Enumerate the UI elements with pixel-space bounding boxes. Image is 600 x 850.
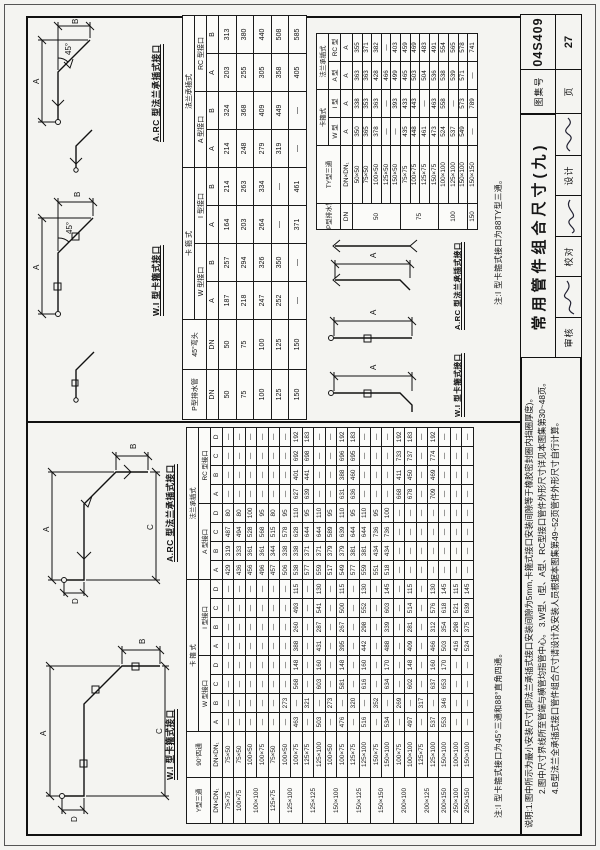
- data-cell: 125×75: [302, 732, 313, 778]
- data-cell: —: [405, 522, 416, 541]
- data-cell: 100×100: [405, 732, 416, 778]
- data-cell: 524: [462, 637, 473, 656]
- data-cell: 554: [439, 33, 449, 61]
- data-cell: —: [336, 694, 347, 713]
- data-cell: 500: [336, 599, 347, 618]
- data-cell: —: [348, 713, 359, 732]
- data-cell: 125×100: [279, 778, 302, 824]
- data-cell: 491: [429, 33, 439, 61]
- header-cell: Y型三通: [187, 778, 211, 824]
- svg-text:B: B: [71, 19, 80, 24]
- data-cell: 150×75: [371, 732, 382, 778]
- data-cell: 381: [359, 541, 370, 560]
- data-cell: 488: [382, 637, 393, 656]
- data-cell: 487: [223, 522, 234, 541]
- data-cell: 639: [302, 484, 313, 503]
- data-cell: —: [279, 713, 290, 732]
- data-cell: 443: [410, 89, 420, 117]
- data-cell: 125×100: [314, 732, 325, 778]
- elbow-45-table: P型排水管45°弯头卡 箍 式法兰承插式W 型接口I 型接口A 型接口RC 型接…: [182, 16, 307, 420]
- data-cell: 506: [279, 560, 290, 579]
- data-cell: 192: [393, 427, 404, 446]
- data-cell: 338: [291, 541, 302, 560]
- data-cell: 371: [289, 206, 307, 244]
- data-cell: 395: [336, 637, 347, 656]
- data-cell: 433: [400, 89, 410, 117]
- data-cell: —: [428, 694, 439, 713]
- data-cell: —: [416, 713, 427, 732]
- data-cell: —: [450, 656, 461, 675]
- svg-text:D: D: [70, 816, 79, 822]
- svg-text:A: A: [369, 364, 378, 370]
- data-cell: 371: [362, 33, 372, 61]
- data-cell: —: [393, 599, 404, 618]
- data-cell: —: [462, 446, 473, 465]
- table-row: 100×75————————49636156895————: [257, 427, 268, 823]
- data-cell: 434: [371, 541, 382, 560]
- data-cell: —: [325, 446, 336, 465]
- y-tee-cross-table: Y型三通90°四通卡 箍 式法兰承插式W 型接口I 型接口A 型接口RC 型接口…: [186, 428, 474, 824]
- data-cell: 403: [391, 33, 401, 61]
- atlas-no-label: 图集号: [520, 69, 556, 114]
- data-cell: 692: [291, 446, 302, 465]
- data-cell: 100×75: [257, 732, 268, 778]
- table-row: 150×100534—63417048833960314551843473610…: [382, 427, 393, 823]
- data-cell: 371: [302, 541, 313, 560]
- data-cell: —: [289, 129, 307, 167]
- data-cell: 503: [439, 637, 450, 656]
- data-cell: —: [325, 637, 336, 656]
- data-cell: —: [405, 560, 416, 579]
- data-cell: —: [314, 484, 325, 503]
- data-cell: 459: [400, 33, 410, 61]
- data-cell: 553: [439, 713, 450, 732]
- data-cell: —: [439, 446, 450, 465]
- data-cell: 100×75: [291, 732, 302, 778]
- remarks-block: 说明:1.图中所示为最小安装尺寸(即法兰承插式接口安装间隙为5mm,卡箍式接口安…: [523, 360, 562, 828]
- data-cell: 95: [257, 503, 268, 522]
- data-cell: 200×125: [416, 778, 439, 824]
- header-cell: C: [211, 599, 223, 618]
- data-cell: 644: [302, 522, 313, 541]
- header-cell: A: [341, 61, 353, 89]
- data-cell: 483: [420, 33, 430, 61]
- data-cell: —: [450, 503, 461, 522]
- data-cell: 517: [325, 560, 336, 579]
- data-cell: 559: [359, 560, 370, 579]
- data-cell: —: [439, 522, 450, 541]
- table-row: 75×50365353363371: [362, 33, 372, 229]
- data-cell: 50: [353, 204, 401, 230]
- header-cell: A: [207, 53, 219, 91]
- header-cell: C: [211, 446, 223, 465]
- header-cell: W 型: [329, 118, 341, 146]
- data-cell: —: [468, 61, 478, 89]
- data-cell: —: [245, 675, 256, 694]
- header-cell: A 型接口: [195, 91, 207, 167]
- elbow-diagram-wi: 45° A B: [30, 188, 142, 328]
- data-cell: —: [314, 446, 325, 465]
- data-cell: 639: [336, 522, 347, 541]
- data-cell: 668: [393, 484, 404, 503]
- data-cell: —: [234, 427, 245, 446]
- data-cell: —: [245, 484, 256, 503]
- data-cell: —: [257, 446, 268, 465]
- data-cell: —: [450, 427, 461, 446]
- data-cell: 344: [268, 541, 279, 560]
- data-cell: —: [450, 675, 461, 694]
- data-cell: —: [279, 465, 290, 484]
- remark-line-3: 4.B型法兰全承插式接口管件组合尺寸请设计及安装人员根据本图集第49~52页管件…: [549, 360, 562, 828]
- table-row: 125×100100×50—273——————50633857895————: [279, 427, 290, 823]
- data-cell: 442: [359, 637, 370, 656]
- data-cell: —: [428, 503, 439, 522]
- table-row: DNDNABABABAB: [207, 15, 219, 419]
- data-cell: —: [416, 637, 427, 656]
- data-cell: 319: [223, 541, 234, 560]
- data-cell: 371: [314, 541, 325, 560]
- data-cell: 160: [314, 656, 325, 675]
- data-cell: 298: [450, 618, 461, 637]
- svg-text:45°: 45°: [65, 222, 74, 234]
- data-cell: 644: [314, 522, 325, 541]
- data-cell: —: [439, 560, 450, 579]
- data-cell: —: [348, 637, 359, 656]
- data-cell: —: [257, 694, 268, 713]
- table-row: 125×7575×50————————45734451580————: [268, 427, 279, 823]
- data-cell: 320: [348, 694, 359, 713]
- data-cell: 187: [219, 282, 237, 320]
- data-cell: —: [234, 618, 245, 637]
- data-cell: 653: [439, 675, 450, 694]
- data-cell: —: [257, 637, 268, 656]
- svg-text:B: B: [129, 444, 138, 449]
- table-row: 150×150150×75—352——————55143473695————: [371, 427, 382, 823]
- data-cell: —: [439, 427, 450, 446]
- data-cell: —: [462, 465, 473, 484]
- data-cell: —: [393, 560, 404, 579]
- data-cell: 170: [439, 656, 450, 675]
- data-cell: —: [393, 618, 404, 637]
- data-cell: 401: [291, 465, 302, 484]
- data-cell: 95: [348, 503, 359, 522]
- header-cell: W 型接口: [199, 656, 211, 732]
- data-cell: 494: [234, 522, 245, 541]
- data-cell: —: [279, 618, 290, 637]
- designer-label: 设计: [555, 155, 582, 196]
- data-cell: 695: [348, 446, 359, 465]
- data-cell: —: [405, 694, 416, 713]
- data-cell: 346: [439, 694, 450, 713]
- data-cell: 789: [468, 89, 478, 117]
- table-row: 200×125125×75—317——————————————: [416, 427, 427, 823]
- data-cell: —: [371, 656, 382, 675]
- data-cell: —: [314, 427, 325, 446]
- table-row: 250×100100×100————416298521115————————: [450, 427, 461, 823]
- header-cell: RC 型接口: [199, 427, 211, 503]
- data-cell: 388: [336, 465, 347, 484]
- header-cell: A: [207, 206, 219, 244]
- data-cell: —: [371, 427, 382, 446]
- data-cell: 461: [289, 167, 307, 205]
- data-cell: 305: [254, 53, 272, 91]
- data-cell: —: [371, 446, 382, 465]
- data-cell: 496: [257, 560, 268, 579]
- data-cell: 267: [336, 618, 347, 637]
- designer-signature: [555, 113, 582, 156]
- data-cell: 324: [219, 91, 237, 129]
- data-cell: —: [462, 694, 473, 713]
- data-cell: —: [382, 465, 393, 484]
- data-cell: 247: [254, 282, 272, 320]
- data-cell: 75×50: [223, 732, 234, 778]
- header-cell: D: [211, 503, 223, 522]
- data-cell: 448: [410, 118, 420, 146]
- data-cell: 358: [271, 53, 289, 91]
- data-cell: 602: [405, 675, 416, 694]
- data-cell: —: [439, 541, 450, 560]
- data-cell: 110: [314, 503, 325, 522]
- svg-text:A: A: [39, 730, 48, 736]
- data-cell: —: [462, 484, 473, 503]
- data-cell: 100×50: [325, 732, 336, 778]
- table-row: DNDN×DN₁AAAA: [341, 33, 353, 229]
- data-cell: —: [325, 599, 336, 618]
- data-cell: 537: [448, 118, 458, 146]
- data-cell: —: [448, 89, 458, 117]
- header-cell: A: [207, 129, 219, 167]
- data-cell: 393: [391, 89, 401, 117]
- data-cell: —: [325, 579, 336, 598]
- header-cell: 法兰承插式: [183, 15, 195, 167]
- data-cell: —: [279, 484, 290, 503]
- data-cell: —: [234, 446, 245, 465]
- signature-scribble: [558, 277, 580, 317]
- header-cell: A: [341, 89, 353, 117]
- header-cell: C: [211, 522, 223, 541]
- data-cell: 183: [348, 427, 359, 446]
- data-cell: —: [234, 465, 245, 484]
- data-cell: 375: [462, 618, 473, 637]
- data-cell: —: [405, 503, 416, 522]
- data-cell: —: [223, 579, 234, 598]
- header-cell: A 型接口: [199, 503, 211, 579]
- data-cell: 183: [302, 427, 313, 446]
- header-cell: A: [207, 282, 219, 320]
- data-cell: 294: [236, 244, 254, 282]
- data-cell: 248: [236, 129, 254, 167]
- data-cell: —: [279, 599, 290, 618]
- table-row: 5050187257164214214324203313: [219, 15, 237, 419]
- data-cell: 338: [353, 89, 363, 117]
- header-cell: A: [211, 637, 223, 656]
- data-cell: 379: [336, 541, 347, 560]
- data-cell: 333: [234, 541, 245, 560]
- data-cell: 388: [291, 637, 302, 656]
- data-cell: —: [245, 637, 256, 656]
- data-cell: 449: [271, 91, 289, 129]
- combo-arc-caption: A.RC 型法兰承插式接口: [164, 464, 178, 562]
- data-cell: 115: [291, 579, 302, 598]
- table-row: 125125252350——319449358508: [271, 15, 289, 419]
- data-cell: 100×75: [393, 732, 404, 778]
- table-row: 100×75463—568148388260493115538338628110…: [291, 427, 302, 823]
- data-cell: 524: [439, 118, 449, 146]
- data-cell: 504: [420, 61, 430, 89]
- data-cell: 312: [428, 618, 439, 637]
- page-no-value: 27: [555, 14, 582, 70]
- data-cell: 50×50: [353, 146, 363, 204]
- elbow-wi-caption: W.I 型卡箍式接口: [150, 245, 164, 316]
- data-cell: 499: [391, 61, 401, 89]
- data-cell: 578: [458, 33, 468, 61]
- data-cell: —: [381, 118, 391, 146]
- table-row: 100×75448443503469: [410, 33, 420, 229]
- data-cell: —: [371, 484, 382, 503]
- data-cell: 473: [429, 118, 439, 146]
- data-cell: —: [257, 675, 268, 694]
- data-cell: 183: [405, 427, 416, 446]
- data-cell: —: [371, 599, 382, 618]
- data-cell: 568: [257, 522, 268, 541]
- data-cell: 150: [289, 320, 307, 370]
- table-row: 150×125125×75—320——————57738164495636460…: [348, 427, 359, 823]
- header-cell: W 型接口: [195, 244, 207, 320]
- data-cell: 263: [236, 167, 254, 205]
- data-cell: 521: [450, 599, 461, 618]
- data-cell: 125×75: [420, 146, 430, 204]
- data-cell: —: [271, 206, 289, 244]
- data-cell: —: [234, 579, 245, 598]
- data-cell: —: [420, 89, 430, 117]
- header-cell: P型排水管: [317, 204, 341, 230]
- table-row: 150×75473463536491: [429, 33, 439, 229]
- data-cell: 125×100: [359, 732, 370, 778]
- data-cell: —: [257, 427, 268, 446]
- data-cell: —: [289, 91, 307, 129]
- header-cell: B: [207, 244, 219, 282]
- data-cell: 100: [439, 204, 468, 230]
- data-cell: —: [302, 599, 313, 618]
- data-cell: —: [245, 713, 256, 732]
- table-row: 5050×50350338363355: [353, 33, 363, 229]
- data-cell: 100×100: [439, 146, 449, 204]
- data-cell: 75: [236, 320, 254, 370]
- data-cell: 255: [236, 53, 254, 91]
- table-row: 100×100497—602148409281514115————6784507…: [405, 427, 416, 823]
- data-cell: 466: [381, 61, 391, 89]
- header-cell: 90°四通: [187, 732, 211, 778]
- data-cell: —: [223, 637, 234, 656]
- data-cell: 627: [291, 484, 302, 503]
- data-cell: 571: [458, 61, 468, 89]
- checker-signature: [555, 195, 582, 237]
- data-cell: 95: [325, 503, 336, 522]
- data-cell: 145: [382, 579, 393, 598]
- data-cell: —: [279, 579, 290, 598]
- svg-text:A: A: [42, 526, 51, 532]
- data-cell: 541: [314, 599, 325, 618]
- svg-text:A: A: [32, 264, 41, 270]
- svg-text:C: C: [146, 524, 155, 530]
- data-cell: —: [223, 656, 234, 675]
- data-cell: —: [359, 446, 370, 465]
- data-cell: —: [257, 484, 268, 503]
- data-cell: 576: [428, 599, 439, 618]
- data-cell: 589: [325, 522, 336, 541]
- data-cell: 150×150: [371, 778, 394, 824]
- data-cell: —: [302, 713, 313, 732]
- data-cell: 381: [348, 541, 359, 560]
- data-cell: —: [223, 618, 234, 637]
- data-cell: —: [325, 465, 336, 484]
- data-cell: 334: [254, 167, 272, 205]
- data-cell: —: [371, 618, 382, 637]
- data-cell: 192: [291, 427, 302, 446]
- data-cell: 461: [420, 118, 430, 146]
- data-cell: 549: [458, 118, 468, 146]
- header-cell: I 型接口: [195, 167, 207, 243]
- data-cell: 538: [291, 560, 302, 579]
- data-cell: —: [245, 599, 256, 618]
- header-cell: DN: [207, 320, 219, 370]
- ty-diagram-wi: A A: [318, 306, 446, 418]
- data-cell: —: [382, 427, 393, 446]
- table-row: Y型三通90°四通卡 箍 式法兰承插式: [187, 427, 199, 823]
- data-cell: 273: [325, 694, 336, 713]
- data-cell: 125×100: [428, 732, 439, 778]
- data-cell: —: [381, 33, 391, 61]
- data-cell: —: [289, 244, 307, 282]
- data-cell: —: [302, 656, 313, 675]
- data-cell: —: [439, 484, 450, 503]
- data-cell: —: [416, 599, 427, 618]
- data-cell: —: [257, 579, 268, 598]
- data-cell: 549: [336, 560, 347, 579]
- data-cell: —: [416, 541, 427, 560]
- data-cell: 440: [254, 15, 272, 53]
- data-cell: 559: [314, 560, 325, 579]
- data-cell: 192: [428, 427, 439, 446]
- data-cell: —: [382, 694, 393, 713]
- header-cell: 法兰承插式: [187, 427, 199, 579]
- header-cell: C: [211, 675, 223, 694]
- data-cell: —: [450, 465, 461, 484]
- data-cell: 214: [219, 129, 237, 167]
- data-cell: —: [245, 618, 256, 637]
- data-cell: 100×50: [279, 732, 290, 778]
- header-cell: RC 型接口: [195, 15, 207, 91]
- data-cell: 536: [429, 61, 439, 89]
- data-cell: 110: [359, 503, 370, 522]
- data-cell: 125×125: [302, 778, 325, 824]
- data-cell: —: [348, 599, 359, 618]
- data-cell: 192: [336, 427, 347, 446]
- data-cell: 565: [448, 33, 458, 61]
- data-cell: 298: [359, 618, 370, 637]
- data-cell: 150×100: [458, 146, 468, 204]
- data-cell: 639: [462, 599, 473, 618]
- data-cell: 50: [219, 320, 237, 370]
- data-cell: 203: [219, 53, 237, 91]
- data-cell: 130: [428, 579, 439, 598]
- data-cell: 326: [254, 244, 272, 282]
- table-row: 125×50——466—: [381, 33, 391, 229]
- data-cell: 338: [279, 541, 290, 560]
- data-cell: —: [416, 484, 427, 503]
- table-row: 125×100503—60316043128754113055937164411…: [314, 427, 325, 823]
- header-cell: B: [211, 541, 223, 560]
